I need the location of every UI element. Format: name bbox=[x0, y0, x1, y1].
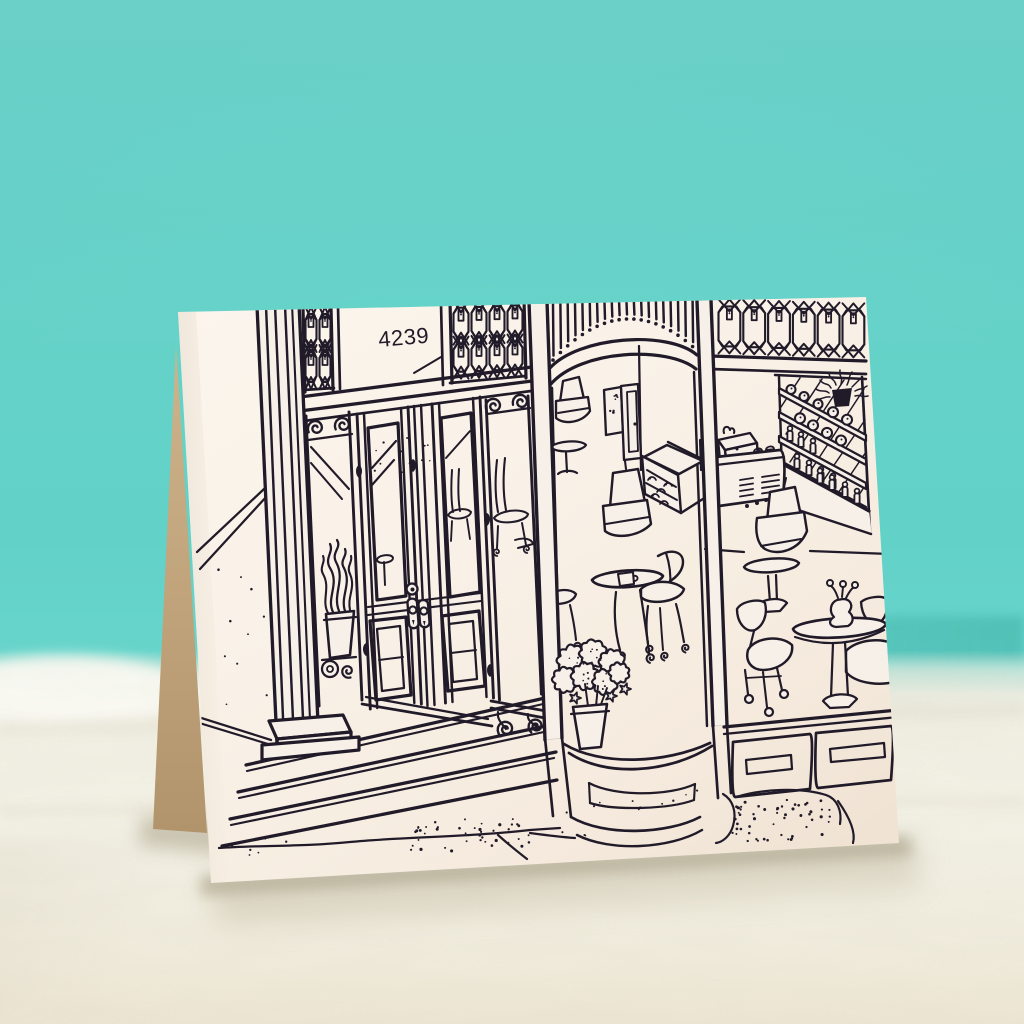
svg-text:4239: 4239 bbox=[377, 323, 430, 352]
